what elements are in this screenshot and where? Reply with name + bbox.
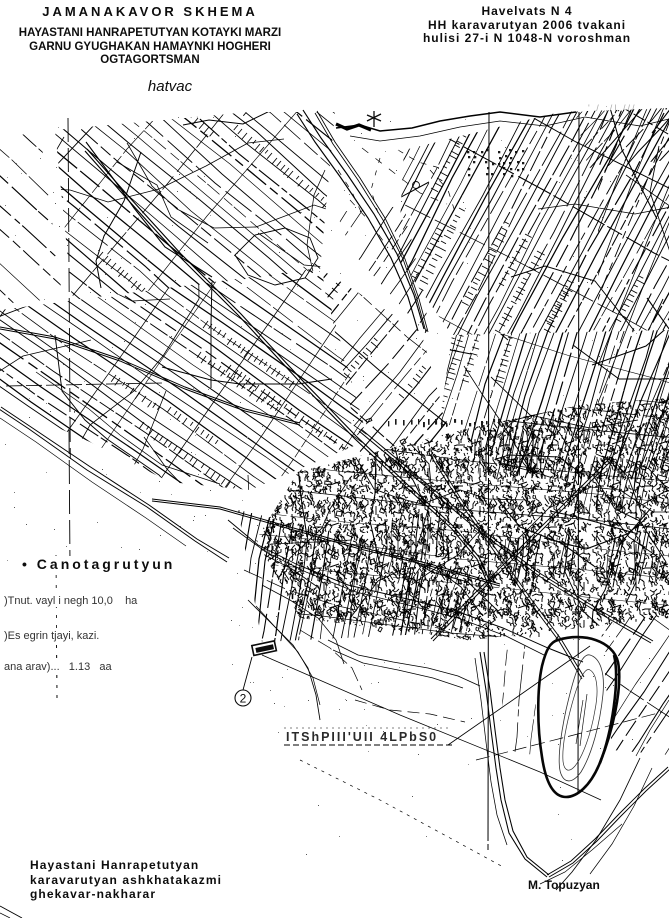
svg-text:ITShPIII'UII 4LPbS0: ITShPIII'UII 4LPbS0 — [286, 730, 438, 744]
svg-text:2: 2 — [240, 692, 247, 706]
